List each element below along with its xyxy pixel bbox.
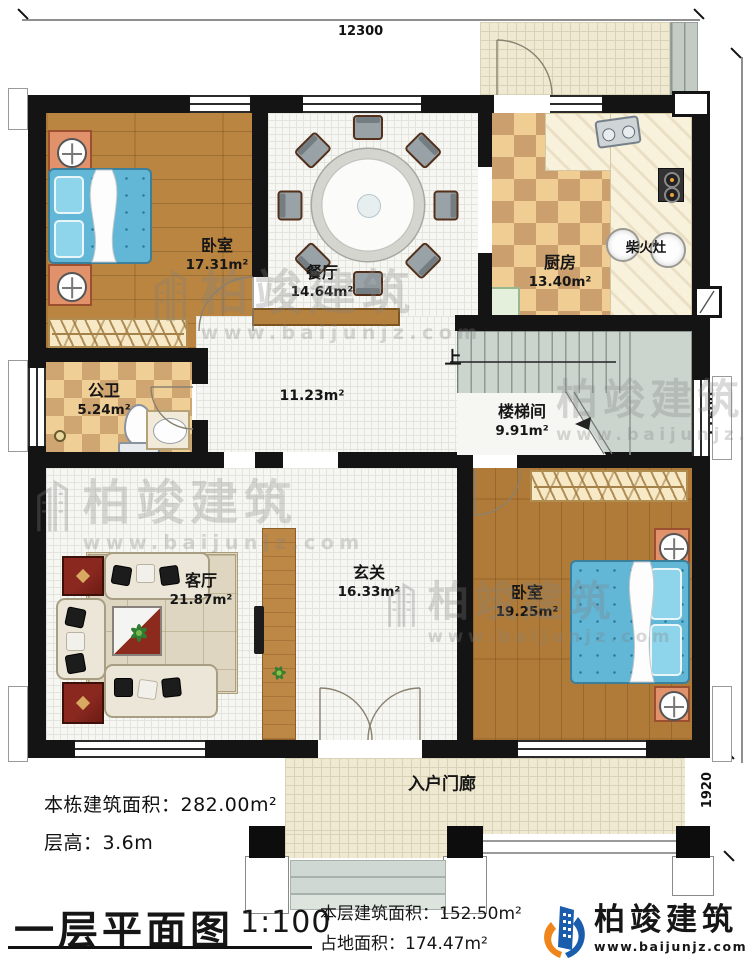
nightstand [654,528,690,564]
lamp-icon [659,533,689,563]
floor-drain-icon [54,430,66,442]
label-stairs-up: 上 [445,344,462,369]
porch-floor [285,758,685,834]
porch-step [290,877,446,894]
wall [478,95,492,167]
window [692,380,710,456]
floor-plan-canvas: 12300 11600 1920 [0,0,750,970]
wall [28,452,224,468]
column-pedestal [672,856,714,896]
nightstand [48,264,92,306]
brand-block: 柏竣建筑 www.baijunjz.com [594,905,747,954]
window [303,95,421,113]
cushion [136,564,155,583]
plant-icon [266,660,292,686]
cushion [114,678,133,697]
tv-partition-wall [262,528,296,740]
dimension-tick [730,47,741,58]
sideboard [252,308,400,326]
bathroom-sink [146,410,190,450]
porch-step [290,860,446,877]
porch-column [676,826,710,858]
window-sill [712,686,732,762]
burner-icon [664,172,680,188]
dining-chair [434,191,459,221]
cushion [110,564,132,586]
dimension-top-value: 12300 [338,24,383,39]
room-label-bedroom1: 卧室 17.31m² [186,236,249,274]
entry-door-opening [318,740,422,758]
cushion [161,677,182,698]
label-wood-stove: 柴火灶 [626,236,667,256]
coffee-table [112,606,162,656]
window-sill [8,360,28,452]
wall [455,315,710,331]
brand-name: 柏竣建筑 [594,905,747,936]
dimension-line-right [741,57,743,763]
dining-chair [353,115,383,140]
door-opening [494,95,550,113]
note-floor-height: 层高：3.6m [44,828,153,855]
room-label-dining: 餐厅 14.64m² [291,263,354,301]
window [518,740,646,758]
dimension-right-lower-value: 1920 [700,772,715,808]
porch-railing [482,852,677,854]
label-hallway-area: 11.23m² [279,388,344,404]
wardrobe [530,470,688,502]
lamp-icon [57,138,87,168]
wardrobe [48,318,188,348]
window [75,740,205,758]
note-building-total-area: 本栋建筑面积：282.00m² [44,790,277,817]
note-floor-area: 本层建筑面积：152.50m² [320,899,522,924]
dimension-tick [17,8,28,19]
wall [457,452,473,758]
brand-logo-icon [538,900,590,962]
terrace-floor [480,22,670,95]
pillow [650,624,682,676]
pillow [54,220,84,258]
room-label-stairwell: 楼梯间 9.91m² [495,402,548,440]
wall [192,420,208,454]
window [28,368,46,446]
dimension-tick [723,850,734,861]
window [550,95,602,113]
porch-column [249,826,285,858]
terrace-steps [670,22,698,95]
dimension-tick [693,8,704,19]
wall [255,452,283,468]
pillow [650,568,682,620]
lamp-icon [57,272,87,302]
chimney [694,286,722,318]
drawing-scale: 1:100 [240,905,331,940]
window-sill [712,376,732,460]
porch-railing [482,840,677,842]
cushion [66,632,85,651]
end-table [62,682,104,724]
title-underline [8,946,312,949]
dimension-line-top [22,19,700,21]
burner-icon [664,187,680,203]
cushion [64,606,87,629]
lamp-icon [659,691,689,721]
hallway-floor [196,316,457,452]
window [190,95,250,113]
porch-floor [285,834,448,858]
stair-treads [457,331,630,393]
brand-url: www.baijunjz.com [594,939,747,954]
plant-icon [114,608,164,658]
room-label-living: 客厅 21.87m² [170,571,233,609]
nightstand [654,686,690,722]
cooktop [658,168,684,202]
end-table [62,556,104,596]
wall [252,95,268,277]
wall [192,348,208,384]
room-label-bedroom2: 卧室 19.25m² [496,583,559,621]
wall [28,348,208,362]
room-label-bathroom: 公卫 5.24m² [77,381,130,419]
wall [338,452,457,468]
room-label-kitchen: 厨房 13.40m² [529,253,592,291]
cushion [64,652,86,674]
pillow [54,176,84,214]
dining-table [312,149,424,261]
nightstand [48,130,92,172]
wall [517,452,692,468]
dining-chair [353,271,383,296]
cushion [137,679,158,700]
dining-chair [278,191,303,221]
room-label-foyer: 玄关 16.33m² [338,563,401,601]
note-land-area: 占地面积：174.47m² [320,929,488,954]
label-porch: 入户门廊 [408,770,476,795]
window-sill [8,686,28,762]
porch-column [447,826,483,858]
window-sill [8,88,28,130]
tv [254,606,264,654]
wall-niche [672,91,710,117]
